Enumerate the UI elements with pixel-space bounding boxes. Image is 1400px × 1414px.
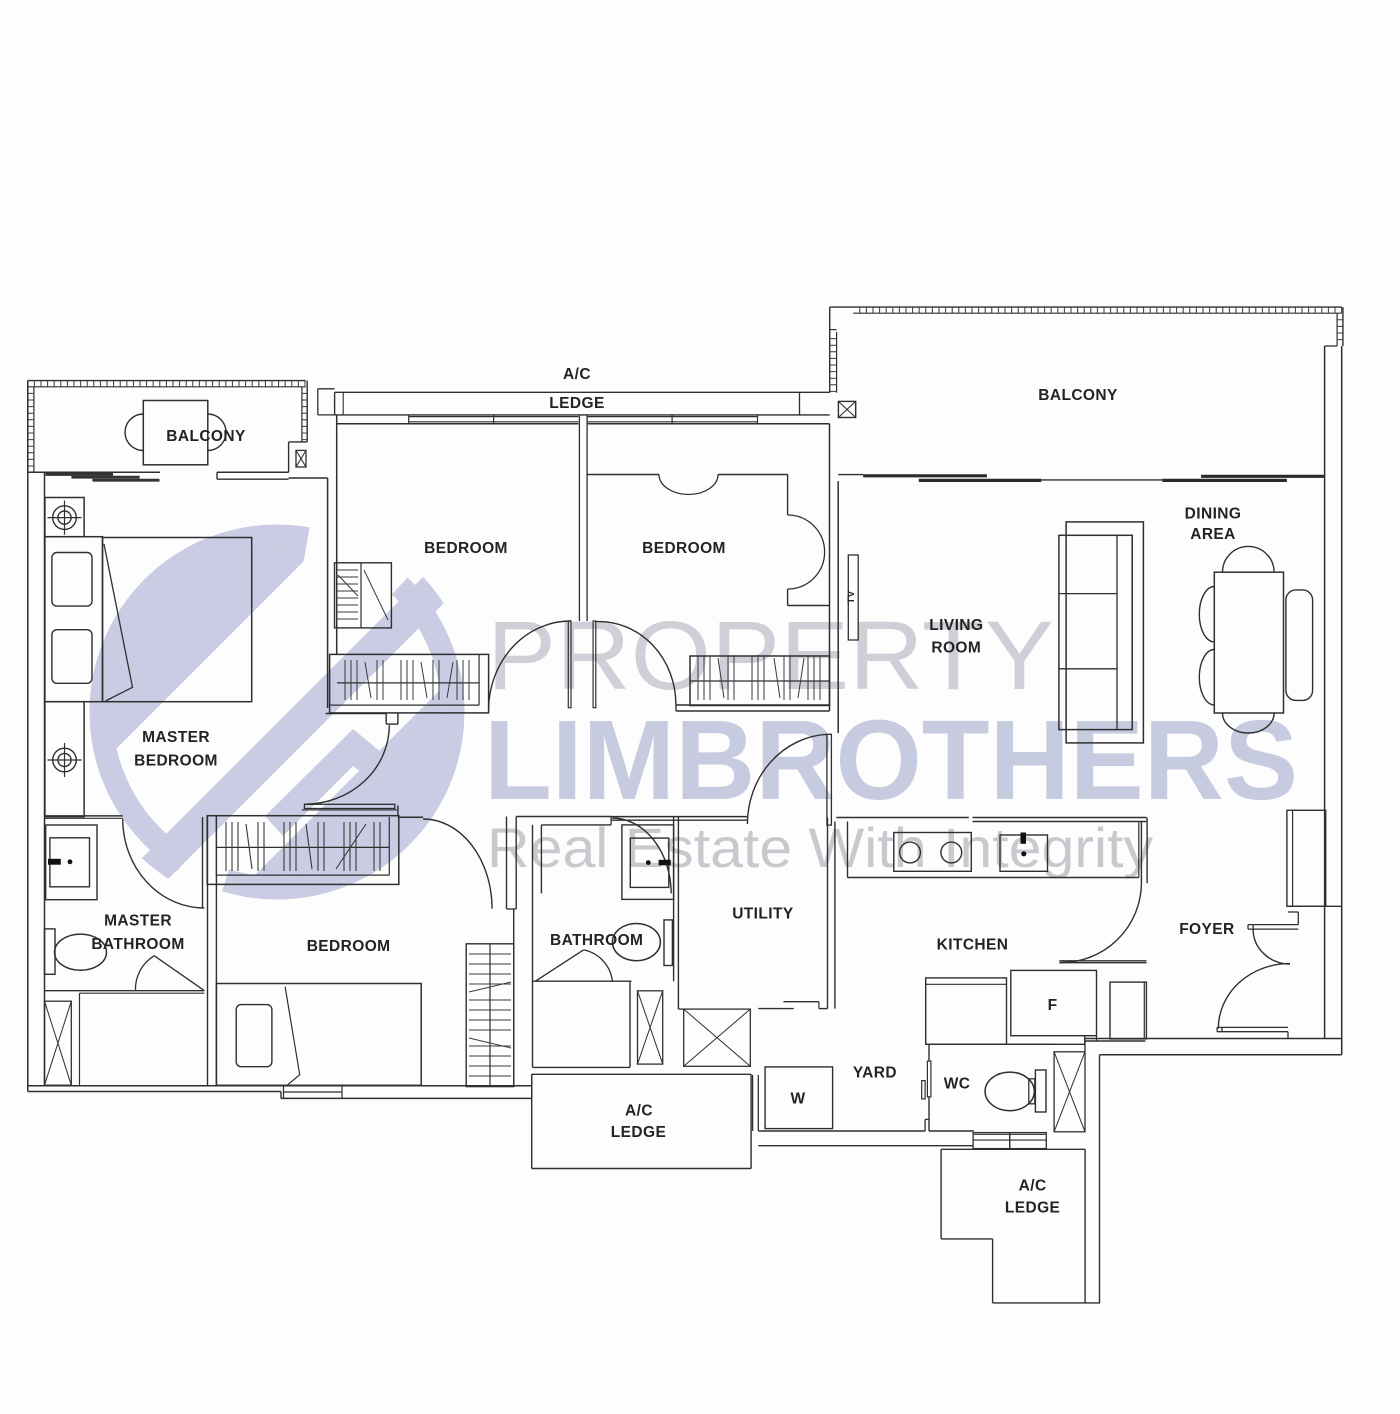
svg-text:A/C: A/C xyxy=(625,1103,653,1120)
svg-text:LIVING: LIVING xyxy=(929,617,983,634)
svg-text:DINING: DINING xyxy=(1185,506,1242,523)
svg-text:W: W xyxy=(790,1091,805,1108)
svg-text:MASTER: MASTER xyxy=(142,729,210,746)
svg-text:LEDGE: LEDGE xyxy=(611,1124,666,1141)
svg-text:YARD: YARD xyxy=(853,1065,897,1082)
svg-text:BATHROOM: BATHROOM xyxy=(550,932,643,949)
svg-text:A/C: A/C xyxy=(1019,1178,1047,1195)
svg-text:KITCHEN: KITCHEN xyxy=(937,937,1009,954)
svg-text:A/C: A/C xyxy=(563,366,591,383)
svg-text:BEDROOM: BEDROOM xyxy=(307,938,391,955)
svg-text:BEDROOM: BEDROOM xyxy=(134,753,218,770)
svg-text:FOYER: FOYER xyxy=(1179,921,1234,938)
svg-text:BALCONY: BALCONY xyxy=(1038,387,1118,404)
svg-text:TV: TV xyxy=(846,590,857,603)
svg-text:LIMBROTHERS: LIMBROTHERS xyxy=(484,697,1298,823)
svg-text:LEDGE: LEDGE xyxy=(1005,1200,1060,1217)
svg-text:AREA: AREA xyxy=(1190,526,1236,543)
svg-text:BEDROOM: BEDROOM xyxy=(642,540,726,557)
svg-text:ROOM: ROOM xyxy=(931,640,981,657)
svg-text:WC: WC xyxy=(944,1076,971,1093)
svg-text:F: F xyxy=(1048,997,1058,1014)
svg-text:BEDROOM: BEDROOM xyxy=(424,540,508,557)
svg-text:BALCONY: BALCONY xyxy=(166,428,246,445)
svg-text:BATHROOM: BATHROOM xyxy=(91,936,184,953)
svg-text:UTILITY: UTILITY xyxy=(732,906,794,923)
svg-text:LEDGE: LEDGE xyxy=(549,395,604,412)
svg-text:MASTER: MASTER xyxy=(104,913,172,930)
